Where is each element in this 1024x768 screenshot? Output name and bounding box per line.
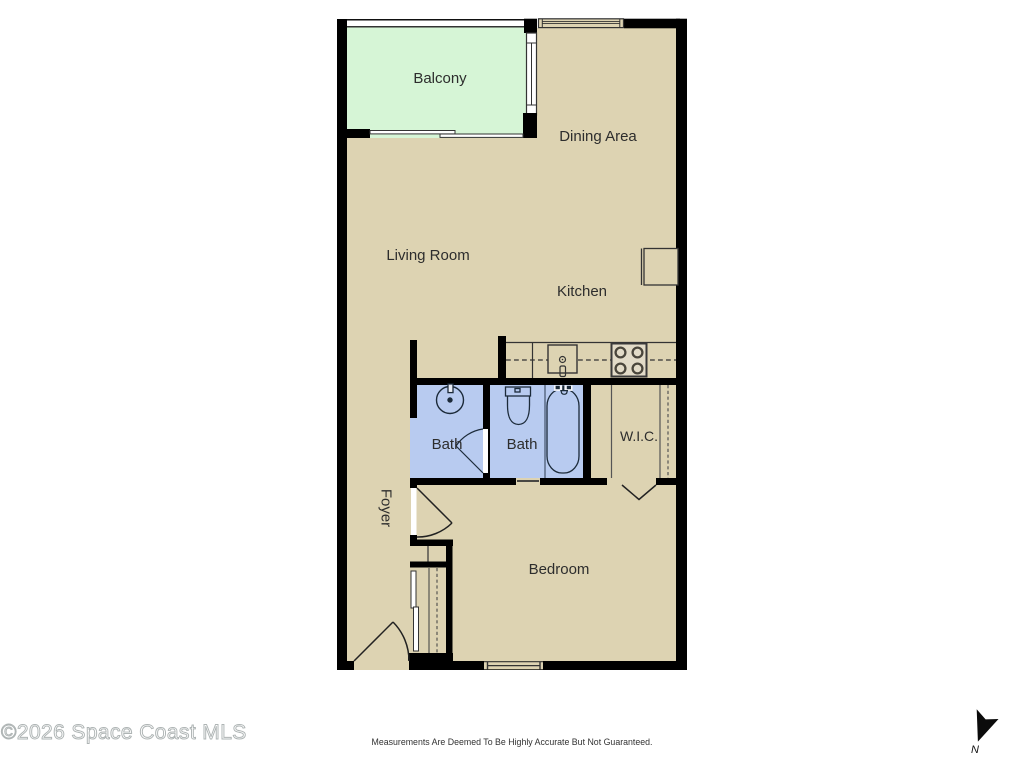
svg-text:Kitchen: Kitchen	[557, 283, 607, 300]
svg-text:Balcony: Balcony	[413, 70, 467, 87]
svg-text:Living Room: Living Room	[386, 247, 469, 264]
svg-text:N: N	[971, 744, 979, 756]
svg-text:Dining Area: Dining Area	[559, 128, 637, 145]
svg-text:Foyer: Foyer	[378, 489, 395, 527]
svg-text:Bath: Bath	[432, 436, 463, 453]
svg-text:Bedroom: Bedroom	[529, 561, 590, 578]
svg-text:©2026 Space Coast MLS: ©2026 Space Coast MLS	[1, 721, 247, 744]
svg-text:Measurements Are Deemed To Be: Measurements Are Deemed To Be Highly Acc…	[372, 737, 653, 747]
svg-text:W.I.C.: W.I.C.	[620, 428, 658, 444]
svg-text:Bath: Bath	[507, 436, 538, 453]
